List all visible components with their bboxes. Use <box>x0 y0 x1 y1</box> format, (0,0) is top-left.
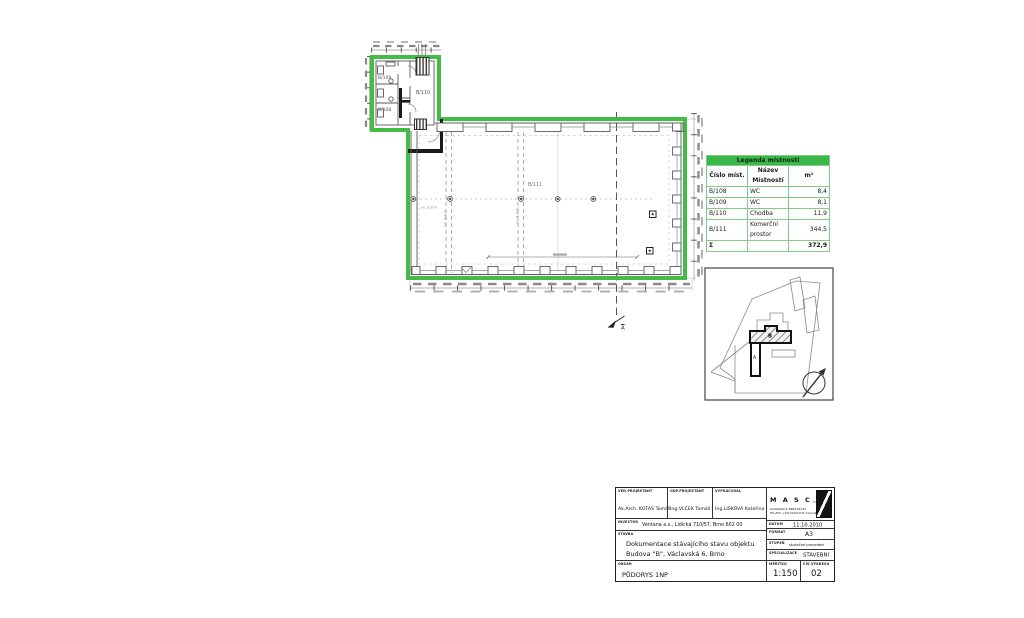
legend-col-area: m² <box>789 166 830 187</box>
titleblock-ved-projektant: VED.PROJEKTANT Ak.Arch. KOTAS Tomáš <box>616 488 668 519</box>
site-label-b: B <box>768 334 772 339</box>
room-label-b110: B/110 <box>416 91 430 96</box>
title-block: VED.PROJEKTANT Ak.Arch. KOTAS Tomáš ODP.… <box>615 487 835 582</box>
height-note: sv. 3,8 m <box>421 206 437 210</box>
legend-row: B/109 WC 8,1 <box>707 198 830 209</box>
legend-row: B/108 WC 8,4 <box>707 187 830 198</box>
titleblock-stupen: STUPEŇ skutečné provedení <box>767 540 834 550</box>
dimension-chain-bottom <box>410 279 692 292</box>
wall-boxes <box>647 211 657 254</box>
height-note: sv. 3,8 m <box>516 208 520 224</box>
room-label-b109: B/109 <box>378 76 391 81</box>
room-label-b111: B/111 <box>528 183 542 188</box>
section-label-a: A <box>621 324 625 331</box>
shaft-hatched <box>416 58 429 76</box>
section-line <box>608 112 625 328</box>
titleblock-firm: M A S C O s.r.o. SLOVÁKOVA 8, BRNO 602 0… <box>767 488 834 521</box>
floor-plan-drawing <box>0 0 1024 618</box>
titleblock-specializace: SPECIALIZACE STAVEBNÍ <box>767 550 834 561</box>
drawing-sheet: B/109 B/110 B/108 B/111 sv. 3,8 m sv. 3,… <box>0 0 1024 618</box>
titleblock-datum: DATUM 11.10.2010 <box>767 521 834 529</box>
titleblock-odp-projektant: ODP.PROJEKTANT Ing.VLČEK Tomáš <box>668 488 713 519</box>
titleblock-format: FORMÁT A3 <box>767 529 834 540</box>
legend-row: B/110 Chodba 11,9 <box>707 209 830 220</box>
height-note: sv. 3,8 m <box>444 210 448 226</box>
legend-sum-row: Σ 372,9 <box>707 241 830 252</box>
site-label-a: A <box>753 356 756 361</box>
legend-title: Legenda místností <box>707 156 830 166</box>
legend-row: B/111 Komerční prostor 344,5 <box>707 220 830 241</box>
shaft-hatched <box>415 119 427 130</box>
columns <box>411 197 596 202</box>
dimension-chain-left <box>366 56 370 131</box>
masco-logo <box>816 490 832 518</box>
legend-col-id: Číslo míst. <box>707 166 748 187</box>
dimension-chain-right <box>686 113 702 281</box>
legend-col-name: Název Místností <box>748 166 789 187</box>
titleblock-investor: INVESTOR Ventana a.s., Lidická 710/57, B… <box>616 519 767 531</box>
interior-construction-lines <box>415 131 669 273</box>
dimension-chain-top <box>371 42 441 57</box>
titleblock-stavba: STAVBA Dokumentace stávajícího stavu obj… <box>616 531 767 561</box>
room-label-b108: B/108 <box>378 108 391 113</box>
legend-table: Legenda místností Číslo míst. Název Míst… <box>706 155 830 252</box>
titleblock-vypracoval: VYPRACOVAL Ing.LIŠKOVÁ Kateřina <box>713 488 767 519</box>
titleblock-cislo-vykresu: ČÍS.VÝKRESU 02 <box>801 561 834 581</box>
titleblock-obsah: OBSAH PŮDORYS 1NP <box>616 561 767 581</box>
titleblock-meritko: MĚŘÍTKO 1:150 <box>767 561 801 581</box>
